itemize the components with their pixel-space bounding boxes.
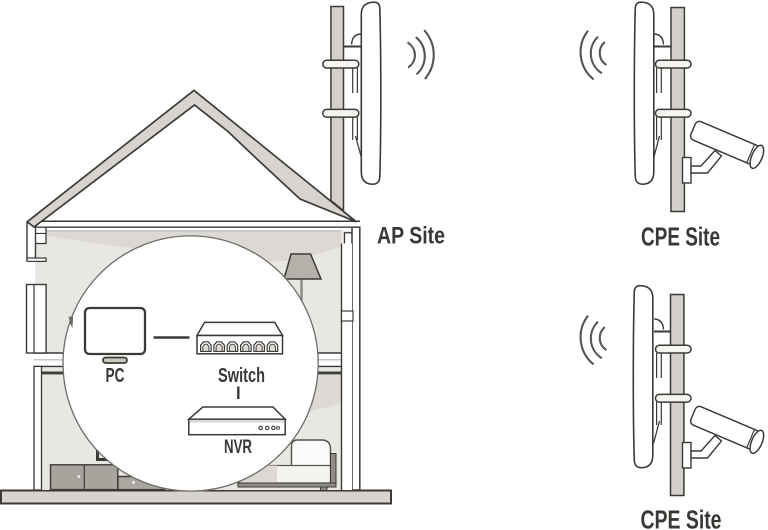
svg-text:AP Site: AP Site [377,223,445,250]
svg-text:CPE Site: CPE Site [641,506,722,530]
svg-text:Switch: Switch [218,364,265,387]
svg-text:PC: PC [106,364,125,387]
svg-text:NVR: NVR [224,436,252,458]
svg-text:CPE Site: CPE Site [641,223,720,251]
